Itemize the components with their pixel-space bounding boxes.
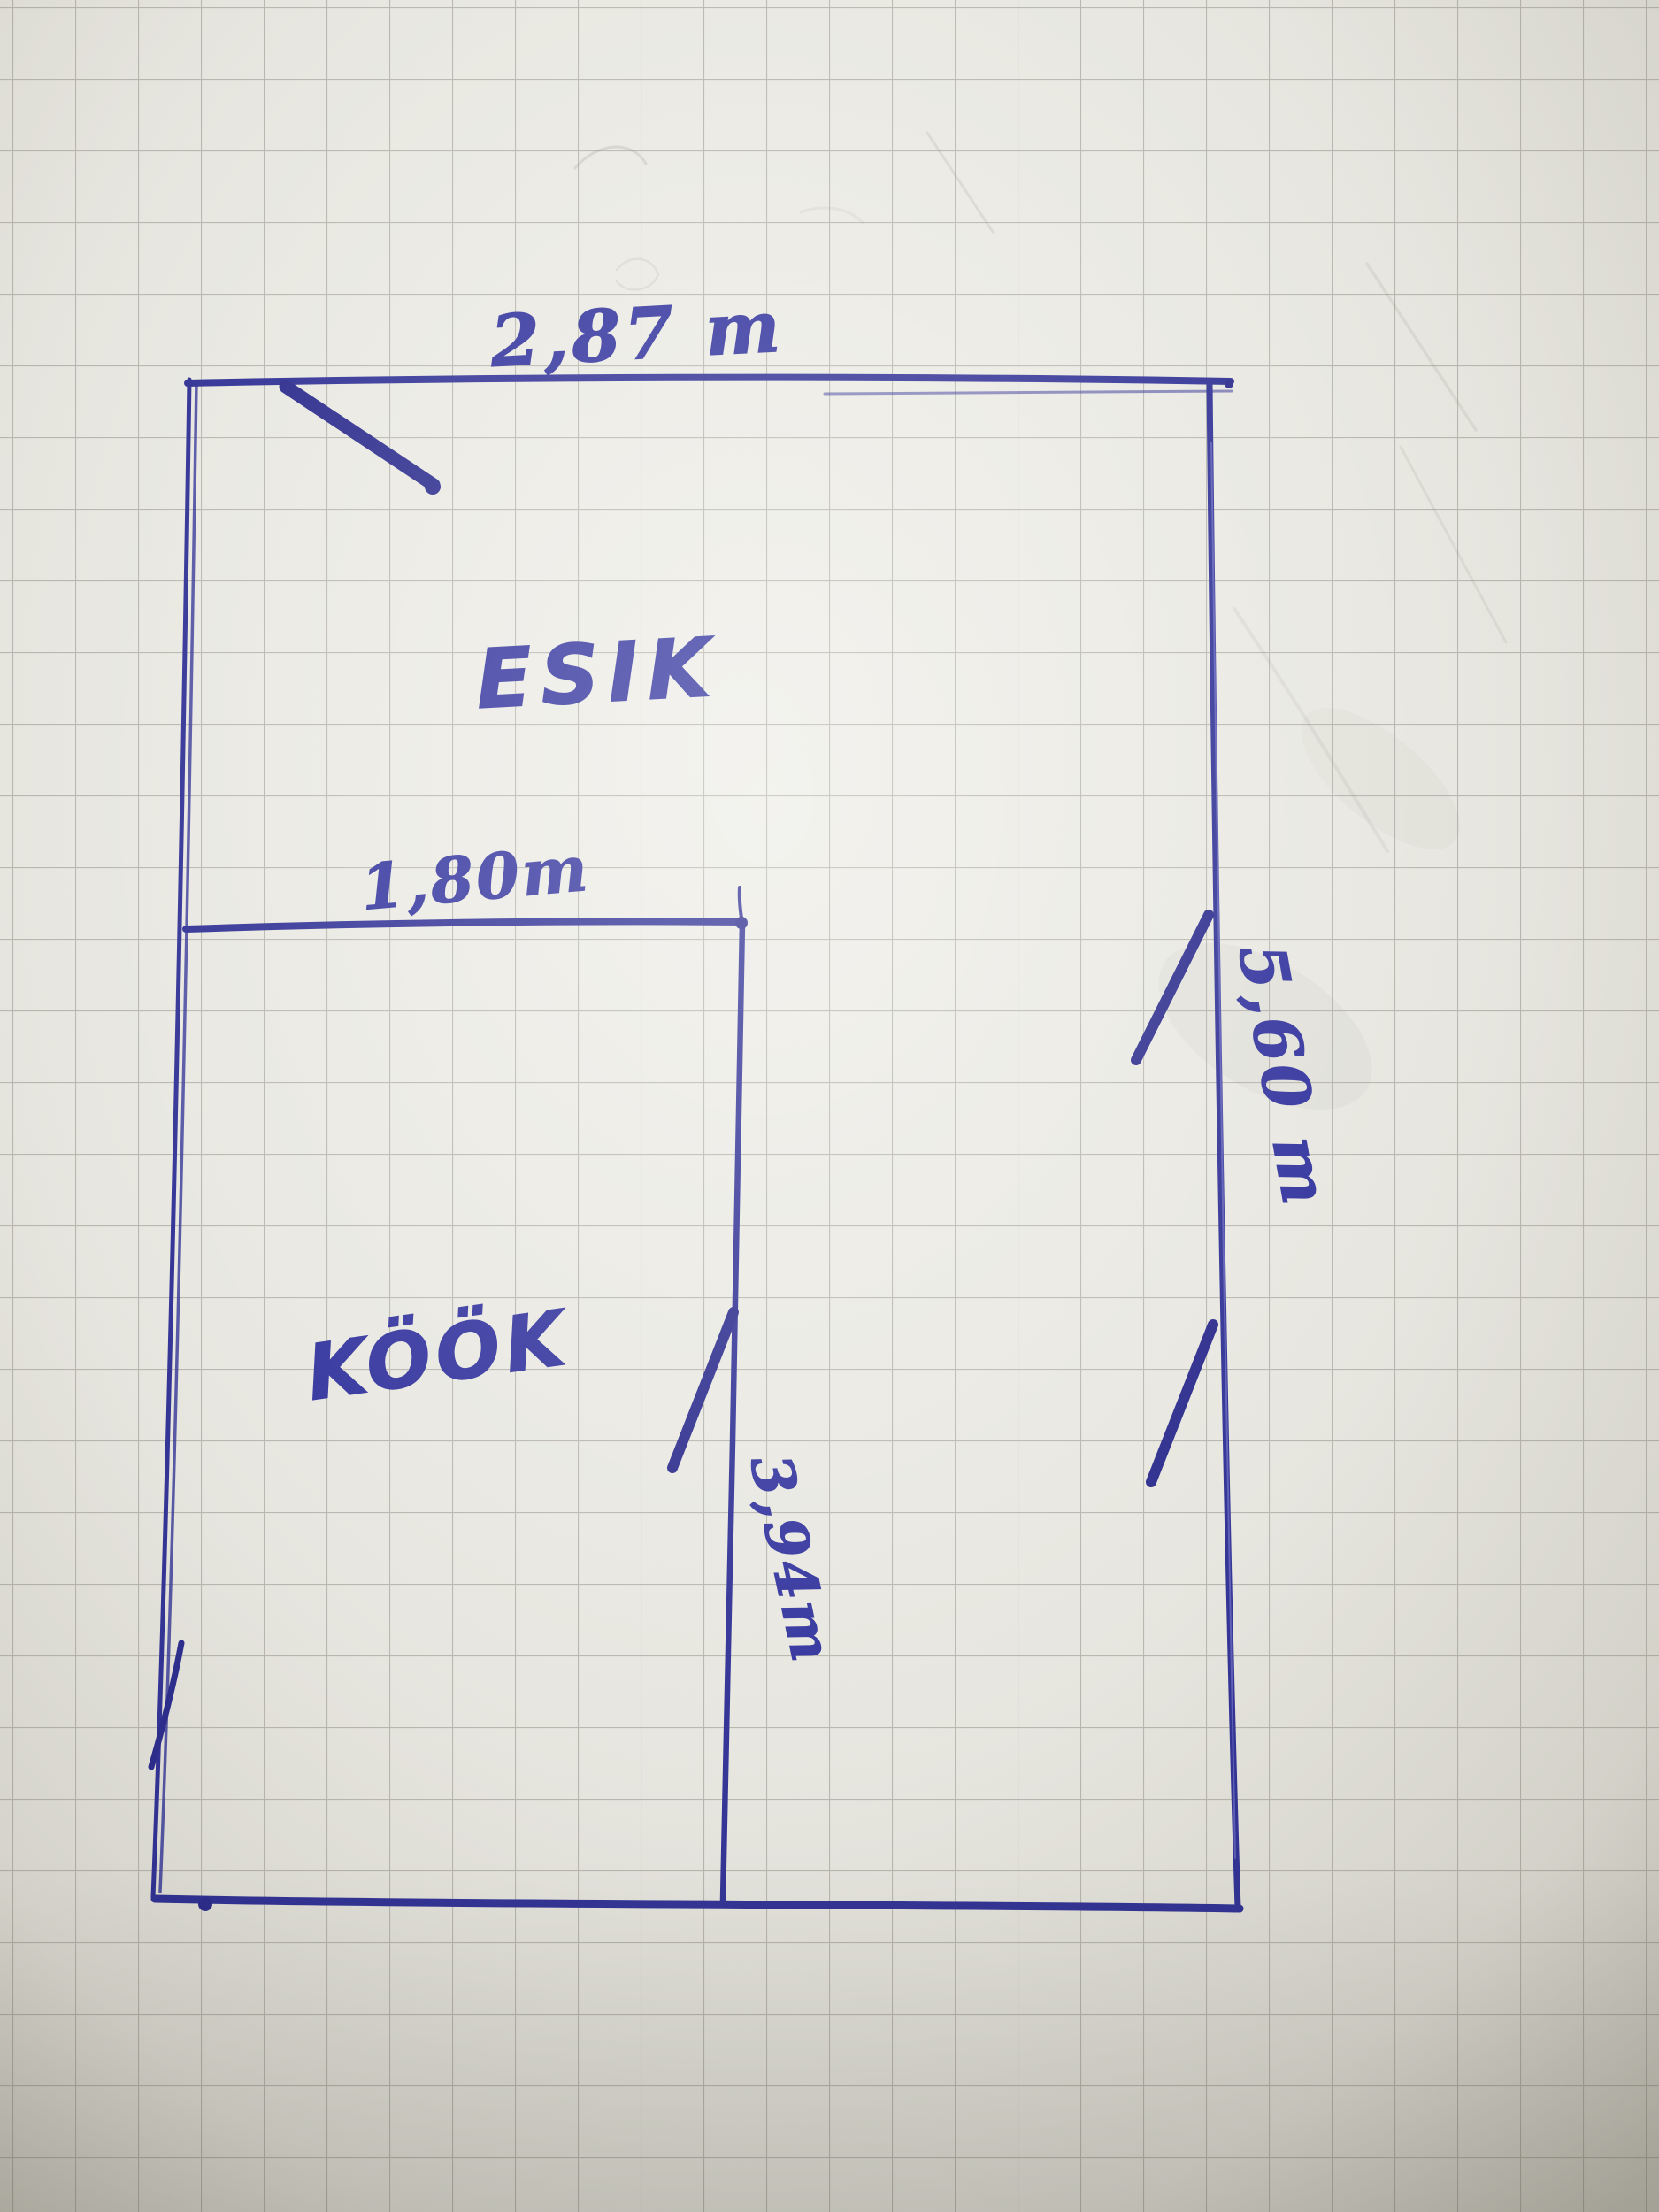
notebook-photo: 2,87 m ESIK 1,80m KÖÖK 5,60 m 3,94m: [0, 0, 1659, 2212]
photo-bottom-shadow: [0, 1858, 1659, 2212]
